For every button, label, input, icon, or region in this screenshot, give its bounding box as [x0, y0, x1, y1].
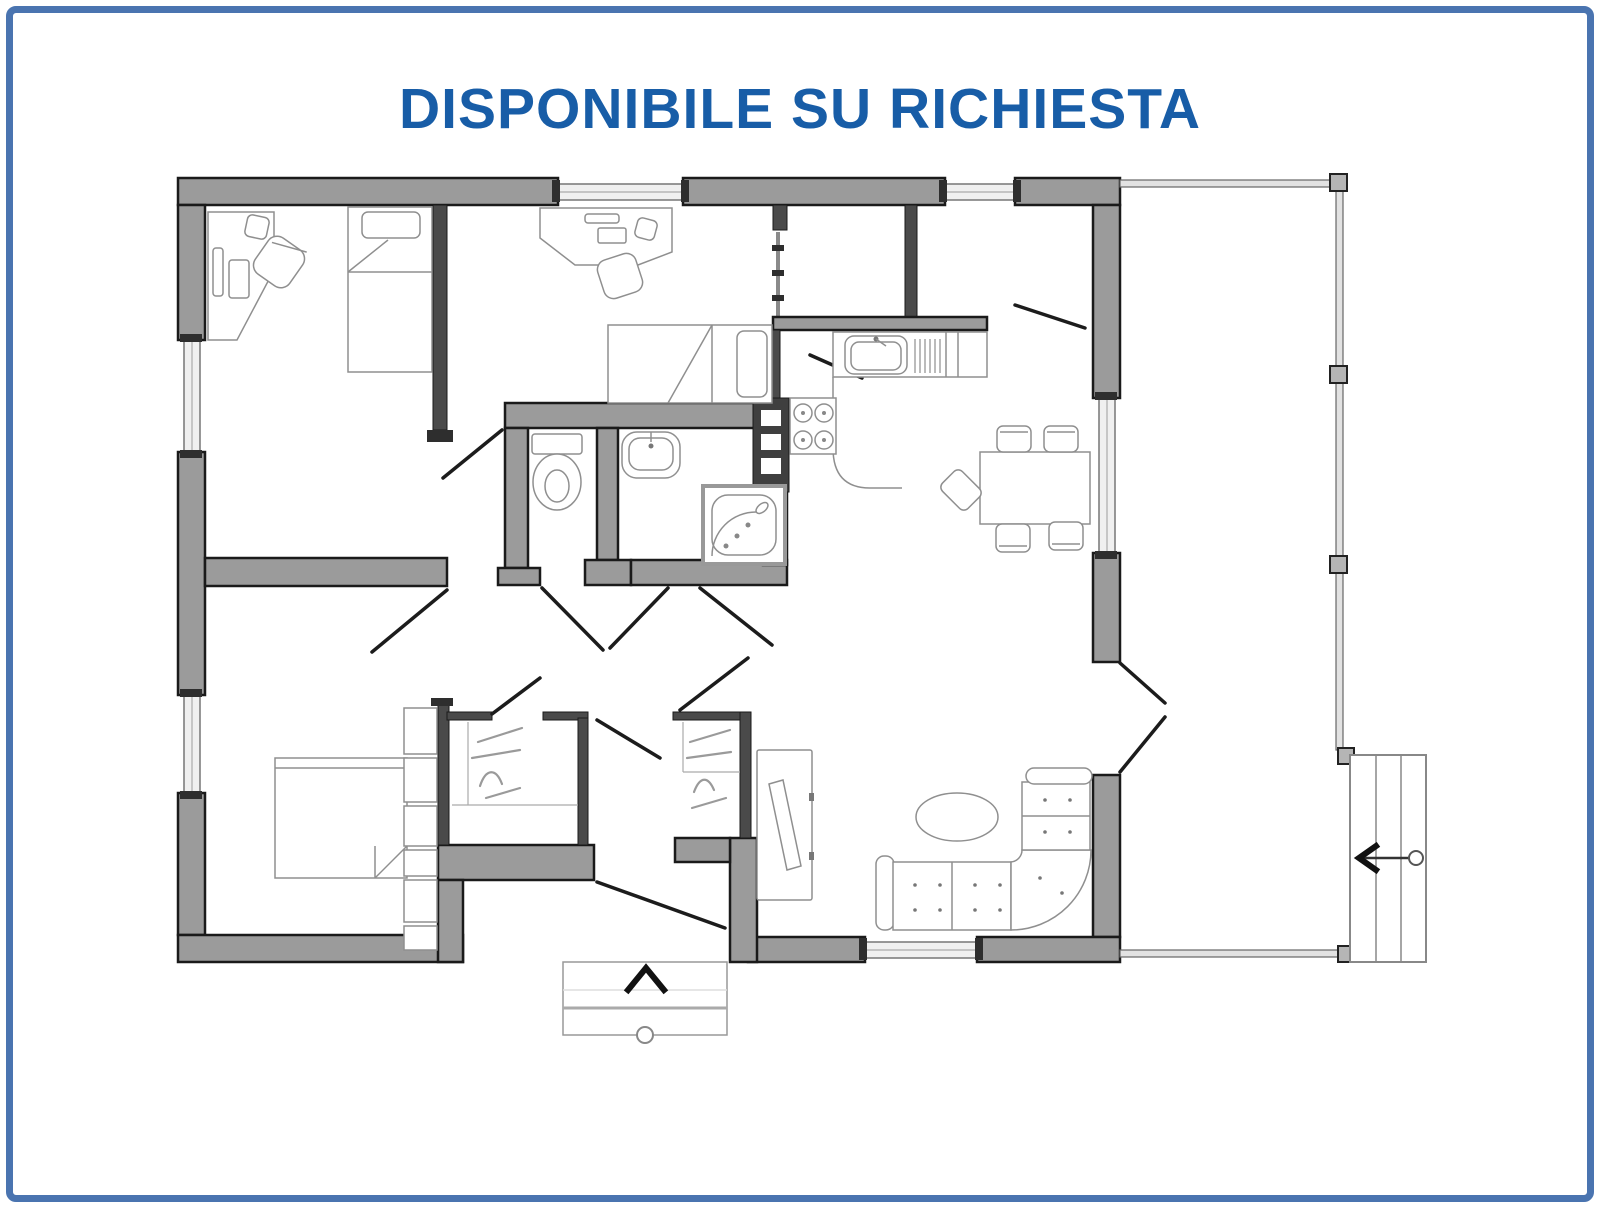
single-bed	[348, 207, 432, 372]
corner-desk	[540, 208, 672, 265]
study-room	[208, 207, 432, 372]
master-bedroom	[275, 708, 437, 950]
french-doors-to-terrace	[1120, 663, 1165, 772]
dining-chair	[997, 426, 1031, 452]
utility-shaft-icon	[753, 398, 789, 492]
stove-icon	[790, 398, 836, 454]
living-room	[757, 750, 1092, 930]
external-stairs	[1350, 755, 1426, 962]
window	[939, 180, 1021, 202]
toilet-icon	[532, 434, 582, 510]
window	[552, 180, 689, 202]
kitchen	[790, 332, 987, 488]
railing-bottom	[1120, 950, 1342, 957]
window	[180, 689, 202, 799]
screenshot-canvas: DISPONIBILE SU RICHIESTA	[0, 0, 1600, 1208]
dining-chair	[996, 524, 1030, 552]
single-bed	[608, 325, 772, 403]
walk-in-closet	[683, 722, 740, 808]
closet-column	[404, 708, 437, 950]
terrace	[1120, 174, 1426, 962]
railing-right	[1336, 190, 1343, 750]
window	[1095, 392, 1117, 559]
tv-cabinet	[757, 750, 814, 900]
dining-area	[938, 426, 1090, 552]
dining-table	[980, 452, 1090, 524]
washbasin-icon	[622, 432, 680, 478]
middle-bedroom	[540, 208, 772, 403]
coffee-table	[916, 793, 998, 841]
dining-chair	[1044, 426, 1078, 452]
bathroom	[532, 432, 785, 564]
window	[859, 938, 983, 960]
double-bed	[275, 758, 407, 878]
sectional-sofa	[876, 768, 1092, 930]
shower-icon	[703, 486, 785, 564]
floor-plan	[0, 0, 1600, 1208]
window	[180, 334, 202, 458]
sink-icon	[845, 336, 907, 374]
dining-chair	[938, 467, 983, 512]
entry-porch	[563, 962, 727, 1043]
dining-chair	[1049, 522, 1083, 550]
walk-in-closet	[452, 722, 578, 805]
railing-top	[1120, 180, 1332, 187]
walk-in-closets	[452, 722, 740, 808]
